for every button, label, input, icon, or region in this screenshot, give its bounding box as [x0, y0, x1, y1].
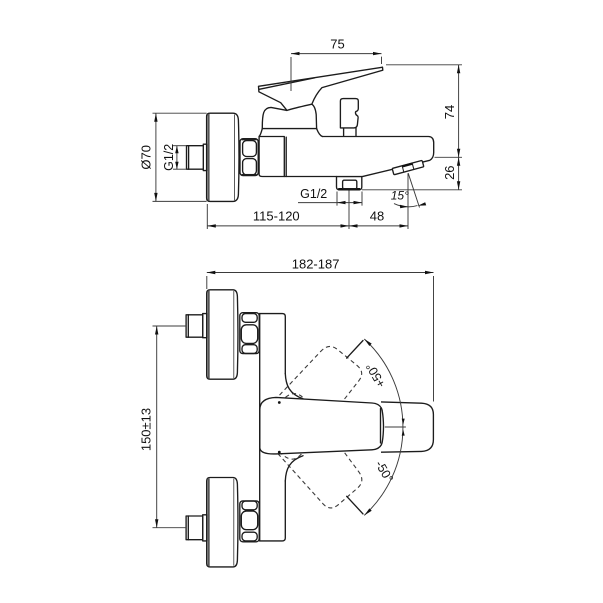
svg-text:G1/2: G1/2	[300, 187, 327, 201]
svg-text:74: 74	[442, 105, 457, 119]
svg-text:182-187: 182-187	[292, 257, 340, 272]
svg-text:75: 75	[330, 37, 344, 52]
svg-text:150±13: 150±13	[138, 408, 153, 451]
svg-text:115-120: 115-120	[253, 209, 300, 224]
svg-text:15°: 15°	[391, 189, 409, 203]
svg-text:48: 48	[370, 209, 384, 224]
svg-text:Ø70: Ø70	[139, 145, 154, 170]
svg-text:G1/2: G1/2	[162, 144, 176, 171]
svg-text:26: 26	[442, 165, 457, 179]
